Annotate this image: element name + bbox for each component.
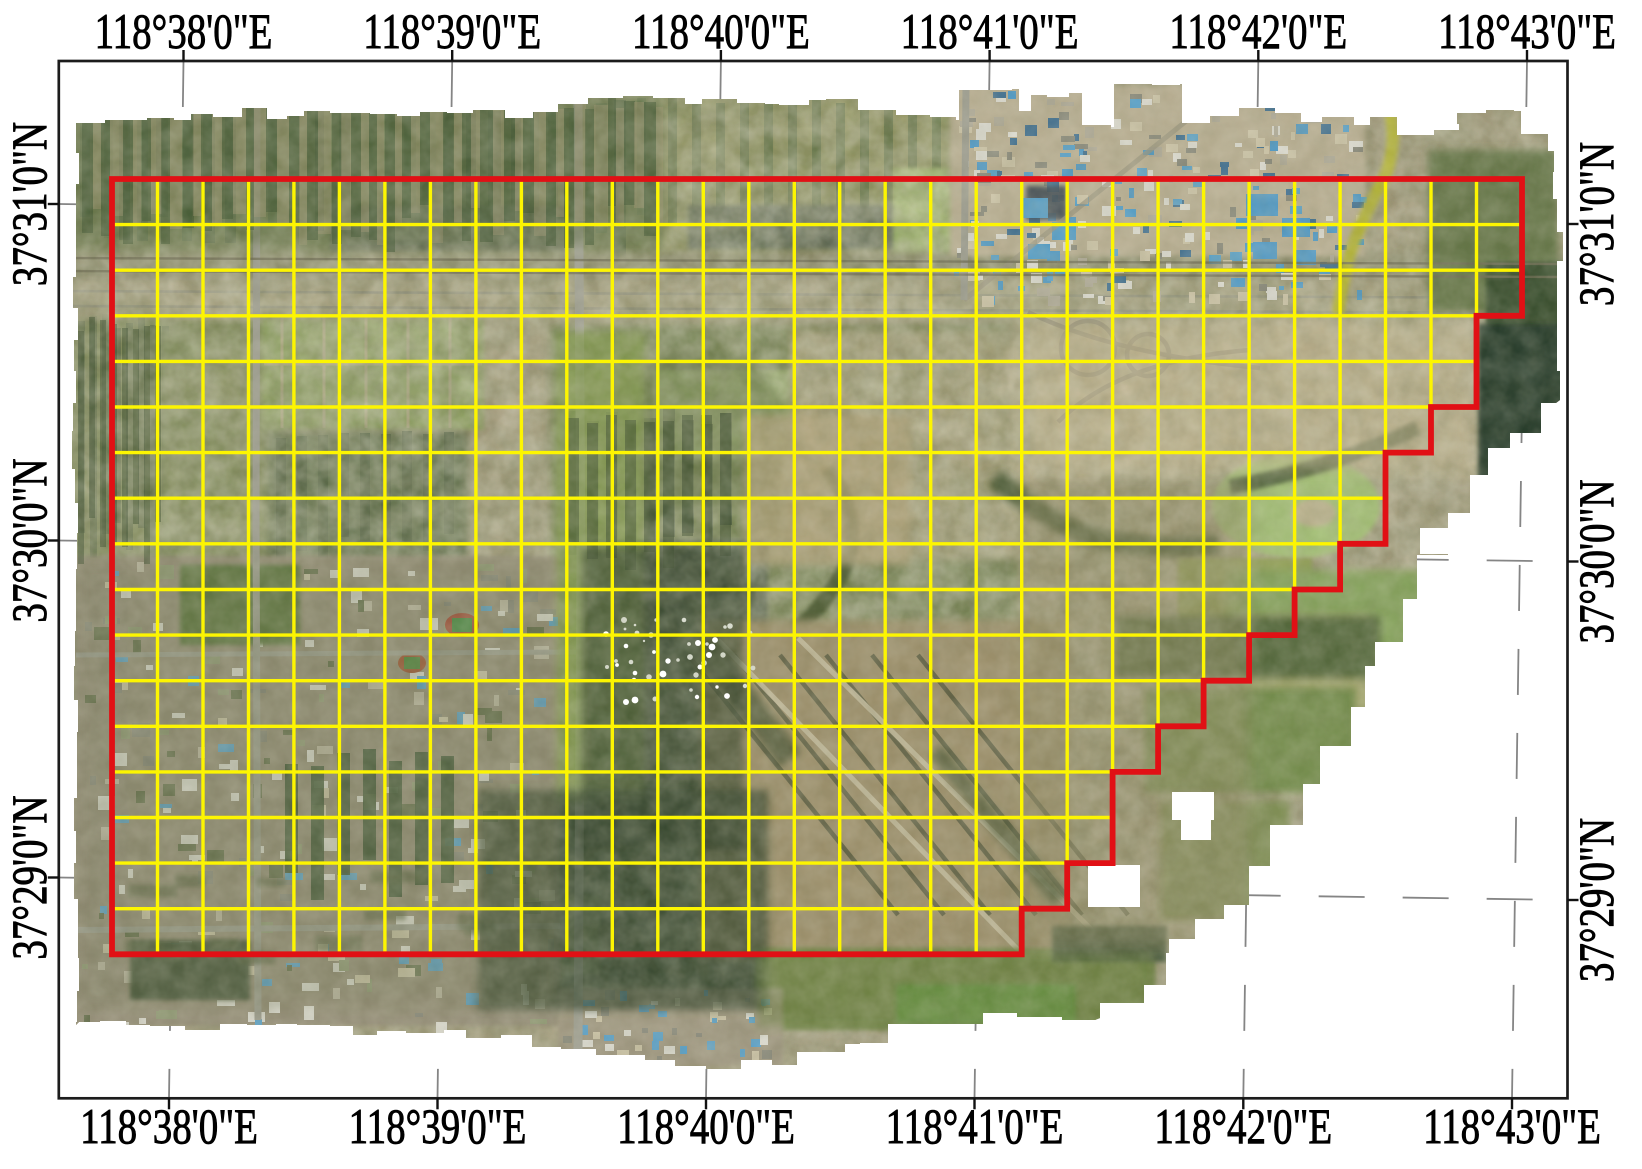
svg-text:118°39'0"E: 118°39'0"E	[349, 1098, 527, 1154]
svg-text:37°31'0"N: 37°31'0"N	[1, 122, 57, 286]
svg-text:118°42'0"E: 118°42'0"E	[1169, 3, 1347, 59]
svg-text:118°41'0"E: 118°41'0"E	[886, 1098, 1064, 1154]
svg-text:118°40'0"E: 118°40'0"E	[617, 1098, 795, 1154]
svg-text:118°39'0"E: 118°39'0"E	[363, 3, 541, 59]
svg-text:118°38'0"E: 118°38'0"E	[95, 3, 273, 59]
svg-text:118°38'0"E: 118°38'0"E	[80, 1098, 258, 1154]
svg-text:118°40'0"E: 118°40'0"E	[632, 3, 810, 59]
svg-text:118°43'0"E: 118°43'0"E	[1423, 1098, 1601, 1154]
svg-text:37°29'0"N: 37°29'0"N	[1568, 818, 1624, 982]
svg-text:37°29'0"N: 37°29'0"N	[1, 795, 57, 959]
svg-text:37°30'0"N: 37°30'0"N	[1, 458, 57, 622]
svg-text:37°30'0"N: 37°30'0"N	[1568, 479, 1624, 643]
svg-text:37°31'0"N: 37°31'0"N	[1568, 142, 1624, 306]
svg-text:118°43'0"E: 118°43'0"E	[1438, 3, 1616, 59]
svg-text:118°42'0"E: 118°42'0"E	[1154, 1098, 1332, 1154]
svg-text:118°41'0"E: 118°41'0"E	[901, 3, 1079, 59]
